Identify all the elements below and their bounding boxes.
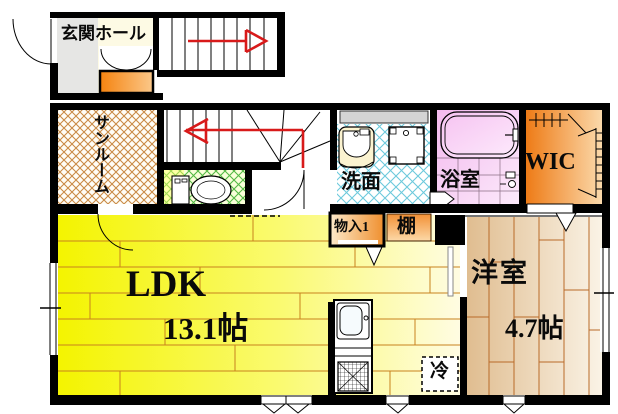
western-room-door <box>448 247 453 296</box>
refrigerator-box <box>422 357 458 391</box>
bathroom <box>430 110 522 206</box>
bathtub <box>441 112 518 158</box>
kitchen-sink <box>340 306 362 335</box>
floor-plan: 玄関ホール サンルーム 洗面 浴室 WIC 物入1 棚 LDK 13.1帖 洋室… <box>0 0 618 414</box>
kitchen-stove <box>338 362 368 391</box>
toilet-room <box>164 170 245 204</box>
shoe-cabinet <box>100 71 153 93</box>
toilet-fixture <box>172 176 231 204</box>
shelf-box <box>387 214 431 241</box>
kitchen-counter <box>334 300 372 393</box>
washroom <box>337 110 430 204</box>
western-room-floor <box>465 216 602 395</box>
ldk-floor <box>58 215 460 395</box>
stairs-lower <box>164 110 330 168</box>
washroom-window <box>340 111 428 123</box>
wic-room <box>526 110 608 205</box>
floor-plan-drawing <box>0 0 618 414</box>
washer-pan <box>389 127 424 164</box>
sunroom-floor <box>58 110 157 204</box>
vanity-sink <box>339 127 374 168</box>
